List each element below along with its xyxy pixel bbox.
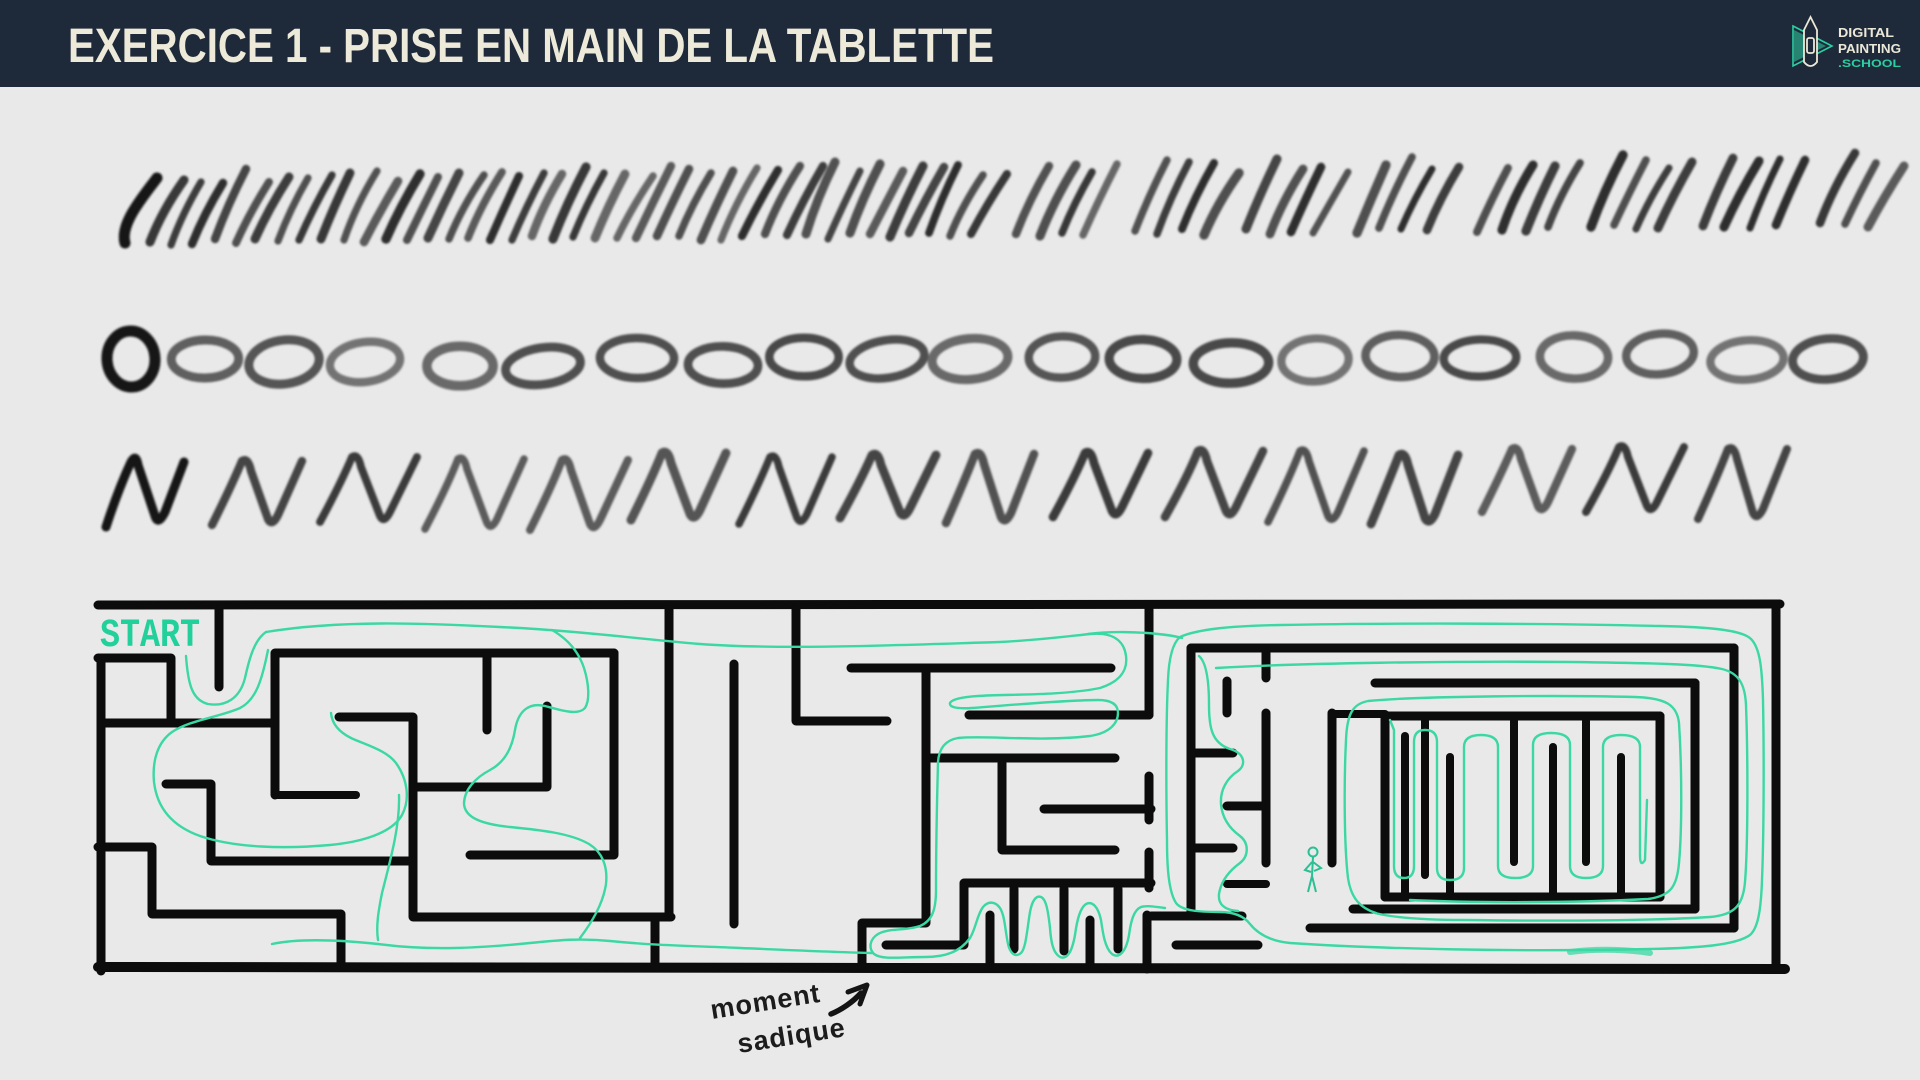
svg-text:START: START xyxy=(100,614,200,659)
svg-text:PAINTING: PAINTING xyxy=(1838,41,1901,56)
svg-text:EXERCICE 1 - PRISE EN MAIN DE: EXERCICE 1 - PRISE EN MAIN DE LA TABLETT… xyxy=(68,20,994,73)
svg-text:DIGITAL: DIGITAL xyxy=(1838,25,1894,40)
svg-text:.SCHOOL: .SCHOOL xyxy=(1838,58,1901,70)
